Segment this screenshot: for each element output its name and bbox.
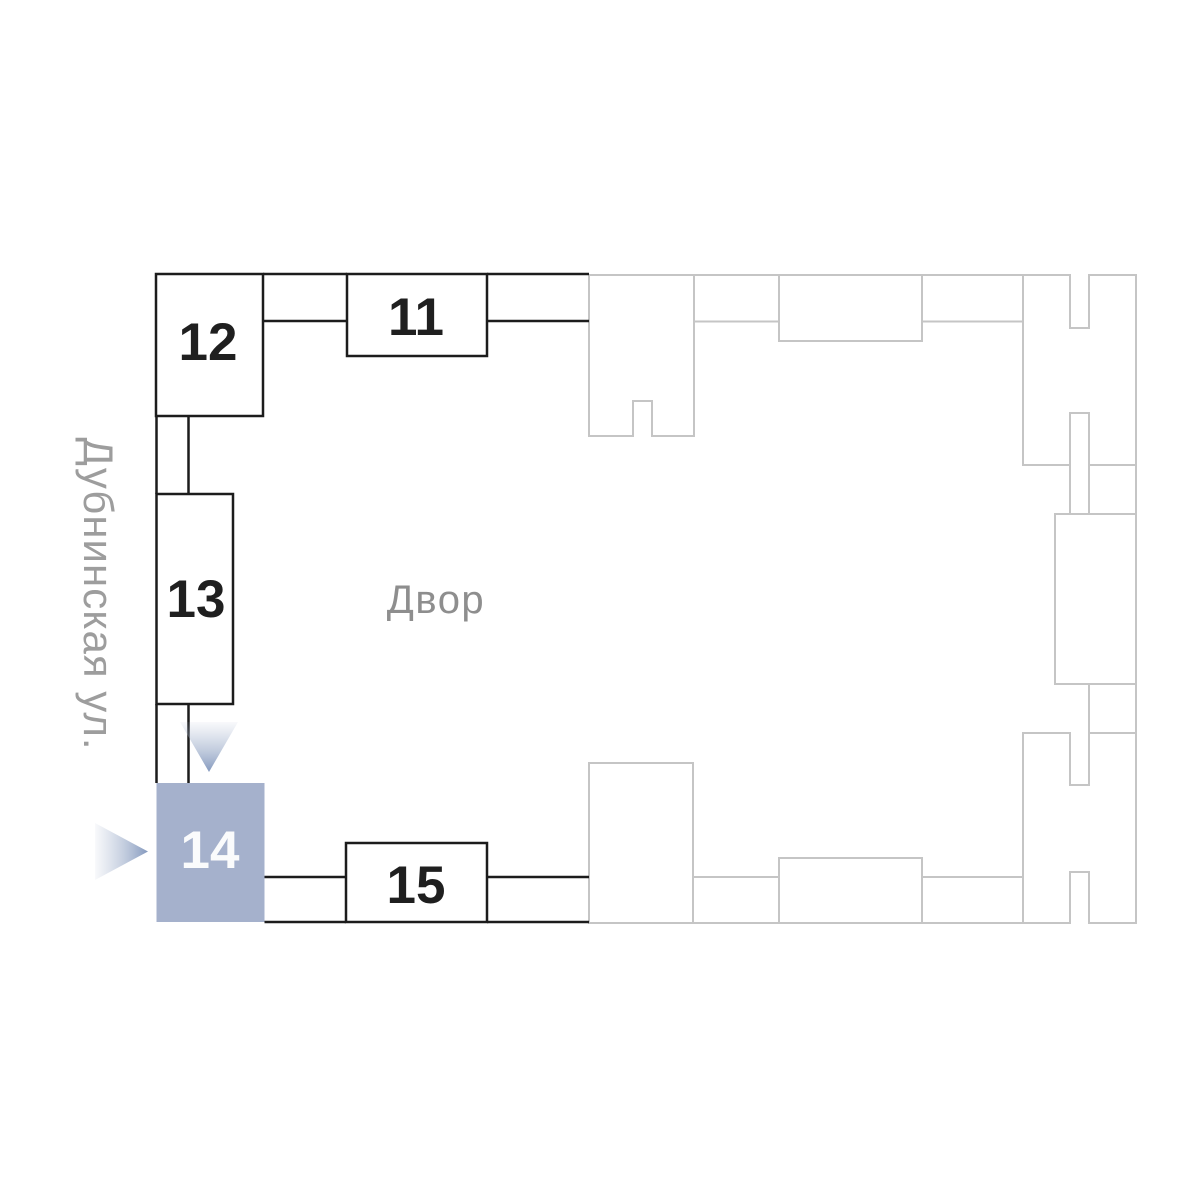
connector-line	[157, 416, 189, 494]
building-14-label: 14	[181, 821, 240, 880]
labels-group: 11 12 13 14 15 Двор Дубнинская ул.	[75, 288, 485, 915]
connector-line	[487, 274, 589, 321]
site-plan-canvas: 11 12 13 14 15 Двор Дубнинская ул.	[0, 0, 1200, 1200]
building-15-label: 15	[387, 856, 446, 915]
neighbor-building-outline	[1055, 514, 1136, 684]
connector-line	[157, 704, 189, 783]
building-13-label: 13	[167, 570, 226, 629]
neighbor-connector-line	[693, 877, 779, 923]
neighbor-connector-line	[922, 275, 1023, 322]
arrow-right-icon	[95, 823, 148, 880]
neighbor-building-outline	[589, 275, 694, 436]
courtyard-label: Двор	[387, 578, 485, 622]
building-12-label: 12	[179, 313, 238, 372]
neighbor-building-outline	[1089, 465, 1136, 514]
street-label: Дубнинская ул.	[75, 437, 122, 750]
neighbor-building-outline	[1023, 275, 1136, 465]
neighbor-building-outline	[779, 275, 922, 341]
neighbor-building-outline	[1089, 684, 1136, 733]
neighbor-connector-line	[694, 275, 779, 322]
neighbor-building-outline	[779, 858, 922, 923]
connector-line	[265, 877, 347, 922]
neighbor-building-outline	[589, 763, 693, 923]
neighbor-building-outline	[1023, 733, 1136, 923]
building-11-label: 11	[388, 288, 444, 347]
neighbor-connector-line	[922, 877, 1023, 923]
neighbor-buildings-group	[589, 275, 1136, 923]
connector-line	[487, 877, 589, 922]
connector-line	[263, 274, 347, 321]
neighbor-passage-line	[1070, 465, 1089, 514]
site-plan: 11 12 13 14 15 Двор Дубнинская ул.	[0, 0, 1200, 1200]
